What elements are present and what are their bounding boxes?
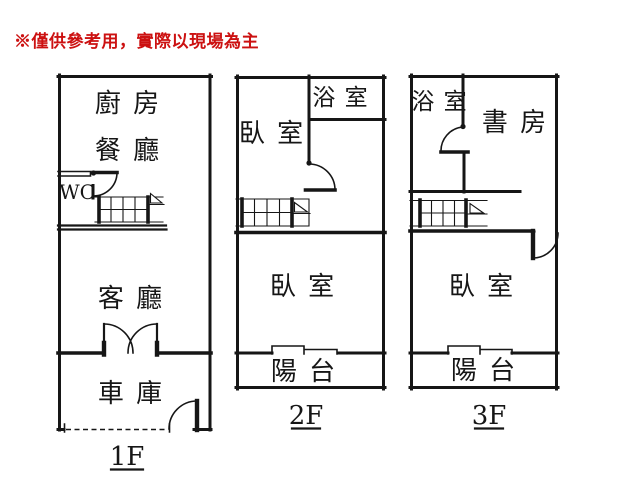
room-label-living: 客 廳 <box>98 284 162 314</box>
room-label-dining: 餐 廳 <box>95 136 159 166</box>
floor-plan-canvas: 廚 房 餐 廳 WC 客 廳 車 庫 1F <box>0 0 640 479</box>
garage-door-icon <box>169 401 197 430</box>
room-label-study: 書 房 <box>482 108 546 138</box>
room-label-bedroom-front: 臥 室 <box>239 119 303 149</box>
bedroom-door-icon-3f <box>530 229 558 258</box>
room-label-balcony-3f: 陽 台 <box>451 356 515 386</box>
stair-direction-flag <box>470 204 484 214</box>
floor-plan-2f: 臥 室 浴 室 臥 室 陽 台 2F <box>236 76 385 431</box>
stairs-icon-1f <box>95 194 164 223</box>
outer-walls-1f <box>58 75 212 430</box>
room-label-bath-3f: 浴 室 <box>411 89 466 115</box>
bathroom-door-icon-3f <box>441 124 466 152</box>
stair-direction-flag <box>295 203 308 213</box>
room-label-bedroom-main-2f: 臥 室 <box>270 272 334 302</box>
floor-plan-1f: 廚 房 餐 廳 WC 客 廳 車 庫 1F <box>58 75 212 472</box>
room-label-garage: 車 庫 <box>98 379 162 409</box>
interior-wall-1f <box>58 226 167 230</box>
floor-label-2f: 2F <box>289 401 324 431</box>
room-label-wc: WC <box>59 180 95 204</box>
bedroom-door-icon-2f <box>306 160 336 190</box>
floor-plan-3f: 浴 室 書 房 臥 室 陽 台 3F <box>410 75 558 431</box>
room-label-bedroom-main-3f: 臥 室 <box>449 272 513 302</box>
floor-label-1f: 1F <box>110 442 145 472</box>
floor-label-3f: 3F <box>472 401 507 431</box>
stairs-icon-2f <box>236 199 310 226</box>
room-label-kitchen: 廚 房 <box>95 89 159 119</box>
room-label-bath-2f: 浴 室 <box>312 85 367 111</box>
floor-plan-page: ※僅供參考用，實際以現場為主 <box>0 0 640 479</box>
sliding-door-icon-3f <box>448 346 512 354</box>
french-door-icon <box>104 324 157 355</box>
garage-opening-dashed <box>65 424 170 432</box>
stairs-icon-3f <box>410 200 487 226</box>
sliding-door-icon-2f <box>272 346 337 354</box>
room-label-balcony-2f: 陽 台 <box>271 357 335 387</box>
stair-direction-flag <box>151 194 163 204</box>
